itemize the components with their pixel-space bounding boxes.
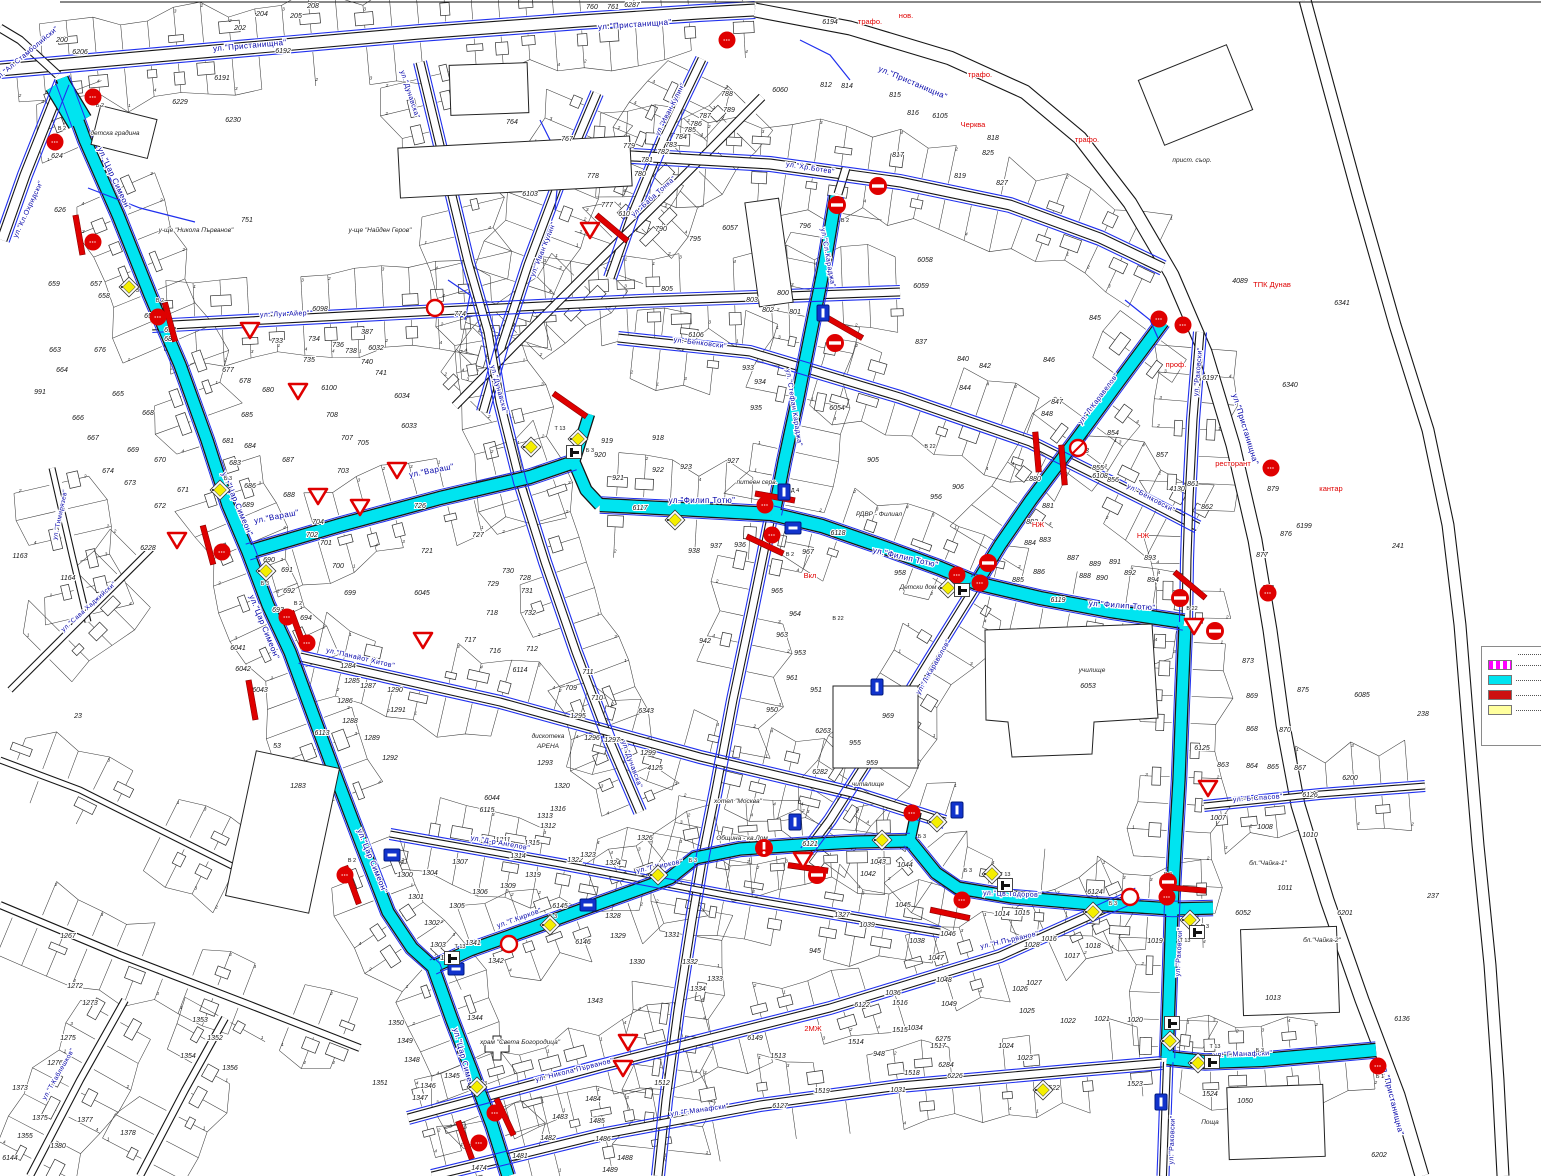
parcel-number: 764 bbox=[506, 119, 518, 126]
parcel-number: 1307 bbox=[452, 859, 469, 866]
parcel-number: 6282 bbox=[812, 769, 828, 776]
parcel-number: 6033 bbox=[401, 423, 417, 430]
svg-text:2: 2 bbox=[368, 967, 372, 973]
parcel-number: 6230 bbox=[225, 117, 241, 124]
parcel-number: 848 bbox=[1041, 411, 1053, 418]
sign-code-label: В 2 bbox=[786, 552, 794, 558]
svg-text:2: 2 bbox=[487, 414, 491, 420]
parcel-number: 950 bbox=[766, 707, 778, 714]
svg-text:2: 2 bbox=[756, 865, 760, 871]
svg-text:4: 4 bbox=[733, 259, 736, 265]
parcel-number: 4125 bbox=[647, 765, 663, 772]
parcel-number: 1302 bbox=[424, 920, 440, 927]
parcel-number: 1377 bbox=[77, 1117, 94, 1124]
sign-code-label: Д 4 bbox=[791, 488, 799, 494]
parcel-number: 6126 bbox=[1302, 792, 1318, 799]
svg-text:3: 3 bbox=[807, 809, 810, 815]
svg-text:1: 1 bbox=[758, 1055, 761, 1061]
parcel-number: 704 bbox=[312, 519, 324, 526]
parcel-number: 1484 bbox=[585, 1096, 601, 1103]
parcel-number: 1305 bbox=[449, 903, 465, 910]
parcel-number: 6200 bbox=[1342, 775, 1358, 782]
parcel-number: 935 bbox=[750, 405, 762, 412]
svg-text:4: 4 bbox=[437, 1071, 440, 1077]
svg-text:2: 2 bbox=[327, 276, 331, 282]
svg-text:3: 3 bbox=[778, 619, 781, 625]
legend-item bbox=[1488, 675, 1541, 685]
svg-text:3: 3 bbox=[1159, 395, 1162, 401]
sign-code-label: Б 3 bbox=[1109, 901, 1117, 907]
parcel-number: 1034 bbox=[907, 1025, 923, 1032]
svg-text:4: 4 bbox=[439, 340, 442, 346]
yield-sign-icon bbox=[414, 633, 432, 648]
no-entry-sign-icon bbox=[1171, 589, 1189, 607]
svg-text:3: 3 bbox=[156, 991, 159, 997]
parcel-number: 789 bbox=[723, 107, 735, 114]
svg-text:1: 1 bbox=[281, 1042, 284, 1048]
parcel-number: 701 bbox=[320, 540, 332, 547]
parcel-number: 840 bbox=[957, 356, 969, 363]
parcel-number: 937 bbox=[710, 543, 723, 550]
parcel-number: 1031 bbox=[890, 1087, 906, 1094]
svg-text:4: 4 bbox=[97, 78, 100, 84]
svg-text:1: 1 bbox=[261, 1035, 264, 1041]
sign-dot-icon bbox=[954, 892, 971, 909]
parcel-number: 666 bbox=[72, 415, 84, 422]
parcel-number: 921 bbox=[612, 475, 624, 482]
svg-text:1: 1 bbox=[907, 622, 910, 628]
svg-text:1: 1 bbox=[177, 800, 180, 806]
parcel-number: 735 bbox=[303, 357, 315, 364]
svg-text:1: 1 bbox=[523, 357, 526, 363]
svg-text:2: 2 bbox=[583, 59, 587, 65]
parcel-number: 1017 bbox=[1064, 953, 1081, 960]
svg-text:1: 1 bbox=[563, 1108, 566, 1114]
svg-text:4: 4 bbox=[557, 62, 560, 68]
svg-text:2: 2 bbox=[746, 859, 750, 865]
red-annotation: нов. bbox=[899, 11, 913, 20]
priority-road-sign-icon bbox=[1033, 1080, 1053, 1100]
parcel-number: 1018 bbox=[1085, 943, 1101, 950]
place-label: бл."Чайка-1" bbox=[1249, 859, 1287, 867]
parcel-number: 777 bbox=[601, 202, 614, 209]
parcel-number: 856 bbox=[1107, 477, 1119, 484]
svg-text:3: 3 bbox=[457, 644, 460, 650]
parcel-number: 1483 bbox=[552, 1114, 568, 1121]
svg-text:2: 2 bbox=[537, 632, 541, 638]
parcel-number: 965 bbox=[771, 588, 783, 595]
parcel-number: 707 bbox=[341, 435, 354, 442]
parcel-number: 964 bbox=[789, 611, 801, 618]
parcel-number: 1019 bbox=[1147, 938, 1163, 945]
svg-text:1: 1 bbox=[597, 612, 600, 618]
yield-sign-icon bbox=[619, 1035, 637, 1050]
parcel-number: 6275 bbox=[935, 1036, 951, 1043]
svg-text:4: 4 bbox=[1012, 461, 1015, 467]
svg-text:3: 3 bbox=[586, 207, 589, 213]
svg-text:1: 1 bbox=[898, 648, 901, 654]
svg-text:3: 3 bbox=[82, 229, 85, 235]
sign-dot-icon bbox=[1175, 317, 1192, 334]
junction-sign-icon bbox=[1165, 1017, 1180, 1030]
parcel-number: 969 bbox=[882, 713, 894, 720]
svg-text:2: 2 bbox=[818, 508, 822, 514]
svg-text:3: 3 bbox=[301, 278, 304, 284]
parcel-number: 1296 bbox=[584, 735, 600, 742]
legend-label-dots bbox=[1516, 709, 1541, 711]
svg-text:3: 3 bbox=[1108, 284, 1111, 290]
sign-dot-icon bbox=[337, 867, 354, 884]
no-entry-sign-icon bbox=[828, 196, 846, 214]
svg-text:4: 4 bbox=[1014, 384, 1017, 390]
parcel-number: 875 bbox=[1297, 687, 1309, 694]
parcel-number: 1328 bbox=[605, 913, 621, 920]
parcel-number: 784 bbox=[675, 134, 687, 141]
svg-text:3: 3 bbox=[638, 847, 641, 853]
parcel-number: 700 bbox=[332, 563, 344, 570]
svg-text:2: 2 bbox=[1140, 961, 1144, 967]
parcel-number: 703 bbox=[337, 468, 349, 475]
svg-text:2: 2 bbox=[617, 125, 621, 131]
parcel-number: 953 bbox=[794, 650, 806, 657]
parcel-number: 1341 bbox=[465, 940, 481, 947]
parcel-number: 6340 bbox=[1282, 382, 1298, 389]
place-label: дискотека bbox=[532, 732, 565, 740]
svg-text:1: 1 bbox=[624, 658, 627, 664]
parcel-number: 885 bbox=[1012, 577, 1024, 584]
svg-text:2: 2 bbox=[1083, 950, 1087, 956]
parcel-number: 782 bbox=[657, 149, 669, 156]
parcel-number: 1267 bbox=[60, 933, 77, 940]
svg-text:2: 2 bbox=[510, 892, 514, 898]
parcel-number: 956 bbox=[930, 494, 942, 501]
svg-text:2: 2 bbox=[855, 809, 859, 815]
svg-text:3: 3 bbox=[382, 267, 385, 273]
svg-text:2: 2 bbox=[1314, 1022, 1318, 1028]
parcel-number: 888 bbox=[1079, 573, 1091, 580]
svg-text:3: 3 bbox=[1150, 877, 1153, 883]
svg-text:3: 3 bbox=[369, 76, 372, 82]
svg-text:2: 2 bbox=[610, 701, 614, 707]
parcel-number: 664 bbox=[56, 367, 68, 374]
parcel-number: 674 bbox=[102, 468, 114, 475]
city-cadastral-map[interactable]: 2143132232334214432221442123143421234113… bbox=[0, 0, 1541, 1176]
svg-text:1: 1 bbox=[1132, 824, 1135, 830]
parcel-number: 6194 bbox=[822, 19, 838, 26]
parcel-number: 6103 bbox=[522, 191, 538, 198]
parcel-number: 783 bbox=[665, 142, 677, 149]
svg-text:3: 3 bbox=[543, 830, 546, 836]
parcel-number: 886 bbox=[1033, 569, 1045, 576]
svg-text:1: 1 bbox=[811, 396, 814, 402]
svg-text:2: 2 bbox=[1017, 564, 1021, 570]
parcel-number: 918 bbox=[652, 435, 664, 442]
svg-text:1: 1 bbox=[547, 1048, 550, 1054]
parcel-number: 883 bbox=[1039, 537, 1051, 544]
parcel-number: 667 bbox=[87, 435, 100, 442]
parcel-number: 1316 bbox=[550, 806, 566, 813]
parcel-number: 1351 bbox=[372, 1080, 388, 1087]
svg-text:4: 4 bbox=[442, 293, 445, 299]
svg-text:2: 2 bbox=[329, 991, 333, 997]
svg-text:4: 4 bbox=[552, 685, 555, 691]
parcel-number: 670 bbox=[154, 457, 166, 464]
svg-text:4: 4 bbox=[1136, 419, 1139, 425]
parcel-number: 857 bbox=[1156, 452, 1169, 459]
legend-swatch-yellow bbox=[1488, 705, 1512, 715]
parcel-number: 6191 bbox=[214, 75, 230, 82]
sign-code-label: Т 13 bbox=[1209, 1044, 1220, 1050]
svg-text:4: 4 bbox=[1009, 1106, 1012, 1112]
svg-text:3: 3 bbox=[174, 8, 177, 14]
sign-code-label: В 2 bbox=[841, 218, 849, 224]
street-name-label: ул."Пристанищна" bbox=[877, 64, 948, 101]
svg-text:4: 4 bbox=[1155, 637, 1158, 643]
legend-swatch-magenta bbox=[1488, 660, 1512, 670]
svg-text:3: 3 bbox=[679, 255, 682, 261]
svg-text:3: 3 bbox=[107, 757, 110, 763]
parcel-number: 1304 bbox=[422, 870, 438, 877]
parcel-number: 1046 bbox=[940, 931, 956, 938]
sign-code-label: В 22 bbox=[832, 616, 843, 622]
red-annotation: трафо. bbox=[1075, 135, 1099, 144]
parcel-number: 6127 bbox=[772, 1103, 789, 1110]
parcel-number: 788 bbox=[721, 91, 733, 98]
parcel-number: 6115 bbox=[479, 807, 494, 814]
parcel-number: 1330 bbox=[629, 959, 645, 966]
sign-dot-icon bbox=[757, 497, 774, 514]
parcel-number: 668 bbox=[142, 410, 154, 417]
svg-text:2: 2 bbox=[18, 93, 22, 99]
svg-text:3: 3 bbox=[779, 702, 782, 708]
parcel-number: 734 bbox=[308, 336, 320, 343]
svg-text:1: 1 bbox=[107, 1136, 110, 1142]
svg-text:2: 2 bbox=[537, 890, 541, 896]
parcel-number: 6042 bbox=[235, 666, 251, 673]
parcel-number: 1025 bbox=[1019, 1008, 1035, 1015]
parcel-number: 1481 bbox=[512, 1153, 528, 1160]
parcel-number: 1485 bbox=[589, 1118, 605, 1125]
svg-text:4: 4 bbox=[332, 1060, 335, 1066]
sign-code-label: Т 13 bbox=[1179, 938, 1190, 944]
parcel-number: 669 bbox=[127, 447, 139, 454]
parcel-number: 624 bbox=[51, 153, 63, 160]
svg-text:1: 1 bbox=[1066, 251, 1069, 257]
yield-sign-icon bbox=[388, 463, 406, 478]
svg-text:4: 4 bbox=[435, 265, 438, 271]
parcel-number: 718 bbox=[486, 610, 498, 617]
parcel-number: 938 bbox=[688, 548, 700, 555]
parcel-number: 1313 bbox=[537, 813, 553, 820]
info-sign-icon bbox=[785, 522, 801, 534]
place-label: прист. съор. bbox=[1172, 157, 1211, 164]
parcel-number: 816 bbox=[907, 110, 919, 117]
street-name-label: ул."Филип Тотю" bbox=[669, 496, 736, 505]
sign-dot-icon bbox=[1370, 1058, 1387, 1075]
parcel-number: 6044 bbox=[484, 795, 500, 802]
svg-text:2: 2 bbox=[893, 1050, 897, 1056]
parcel-number: 1289 bbox=[364, 735, 380, 742]
svg-text:1: 1 bbox=[713, 105, 716, 111]
parcel-number: 6057 bbox=[722, 225, 739, 232]
parcel-number: 208 bbox=[306, 3, 319, 10]
road-closure-bar-icon bbox=[930, 907, 970, 921]
parcel-number: 1309 bbox=[500, 883, 516, 890]
parcel-number: 1273 bbox=[82, 1000, 98, 1007]
parcel-number: 1474 bbox=[471, 1165, 487, 1172]
svg-text:4: 4 bbox=[623, 188, 626, 194]
parcel-number: 1301 bbox=[408, 894, 424, 901]
svg-text:4: 4 bbox=[375, 542, 378, 548]
parcel-number: 1320 bbox=[554, 783, 570, 790]
svg-text:2: 2 bbox=[336, 687, 340, 693]
parcel-number: 845 bbox=[1089, 315, 1101, 322]
parcel-number: 1036 bbox=[885, 990, 901, 997]
parcel-number: 801 bbox=[789, 309, 801, 316]
svg-text:2: 2 bbox=[849, 1027, 853, 1033]
svg-text:2: 2 bbox=[558, 688, 562, 694]
no-entry-sign-icon bbox=[826, 334, 844, 352]
svg-text:2: 2 bbox=[269, 676, 273, 682]
parcel-number: 1523 bbox=[1127, 1081, 1143, 1088]
parcel-number: 815 bbox=[889, 92, 901, 99]
place-label: питеен серв. bbox=[737, 479, 778, 486]
svg-text:4: 4 bbox=[906, 504, 909, 510]
svg-text:4: 4 bbox=[464, 348, 467, 354]
parcel-number: 1515 bbox=[892, 1027, 908, 1034]
parcel-number: 6054 bbox=[829, 405, 845, 412]
sign-dot-icon bbox=[85, 89, 102, 106]
parcel-number: 663 bbox=[49, 347, 61, 354]
map-legend bbox=[1481, 646, 1541, 746]
svg-text:2: 2 bbox=[384, 338, 388, 344]
place-label: у-ще "Никола Първанов" bbox=[158, 227, 234, 234]
svg-text:2: 2 bbox=[579, 229, 583, 235]
street-name-label: ул."Вараш" bbox=[408, 462, 454, 480]
junction-sign-icon bbox=[445, 952, 460, 965]
svg-text:4: 4 bbox=[712, 633, 715, 639]
parcel-number: 780 bbox=[634, 171, 646, 178]
svg-text:1: 1 bbox=[481, 525, 484, 531]
parcel-number: 868 bbox=[1246, 726, 1258, 733]
svg-text:3: 3 bbox=[708, 319, 711, 325]
cyan-street-network bbox=[57, 78, 1376, 1176]
parcel-number: 1290 bbox=[387, 687, 403, 694]
parcel-number: 726 bbox=[414, 503, 426, 510]
parcel-number: 711 bbox=[582, 669, 593, 676]
parcel-number: 1163 bbox=[12, 553, 27, 560]
svg-text:4: 4 bbox=[34, 540, 37, 546]
parcel-number: 1314 bbox=[510, 853, 526, 860]
legend-swatch-cyan bbox=[1488, 675, 1512, 685]
parcel-number: 6114 bbox=[512, 667, 527, 674]
svg-text:1: 1 bbox=[128, 103, 131, 109]
street-name-label: ул."Раковски" bbox=[1168, 1115, 1177, 1164]
parcel-number: 6287 bbox=[624, 2, 641, 9]
svg-text:2: 2 bbox=[929, 591, 933, 597]
parcel-number: 626 bbox=[54, 207, 66, 214]
svg-text:2: 2 bbox=[113, 529, 117, 535]
svg-text:3: 3 bbox=[680, 839, 683, 845]
parcel-number: 1373 bbox=[12, 1085, 28, 1092]
parcel-texture: 2143132232334214432221442123143421234113… bbox=[0, 0, 1414, 1176]
svg-text:1: 1 bbox=[406, 984, 409, 990]
parcel-number: 854 bbox=[1107, 430, 1119, 437]
parcel-number: 846 bbox=[1043, 357, 1055, 364]
svg-text:2: 2 bbox=[411, 1021, 415, 1027]
parcel-number: 818 bbox=[987, 135, 999, 142]
svg-text:2: 2 bbox=[440, 321, 444, 327]
parcel-number: 891 bbox=[1109, 559, 1121, 566]
parcel-number: 688 bbox=[283, 492, 295, 499]
svg-text:4: 4 bbox=[81, 201, 84, 207]
parcel-number: 6149 bbox=[747, 1035, 763, 1042]
parcel-number: 805 bbox=[661, 286, 673, 293]
parcel-number: 1319 bbox=[525, 872, 541, 879]
svg-text:1: 1 bbox=[758, 440, 761, 446]
parcel-number: 237 bbox=[1426, 893, 1440, 900]
parcel-number: 803 bbox=[746, 297, 758, 304]
svg-text:4: 4 bbox=[979, 989, 982, 995]
road-closure-bar-icon bbox=[200, 525, 216, 565]
svg-text:4: 4 bbox=[154, 88, 157, 94]
parcel-number: 781 bbox=[641, 157, 653, 164]
red-annotation: трафо. bbox=[858, 17, 882, 26]
parcel-number: 238 bbox=[1416, 711, 1429, 718]
parcel-number: 738 bbox=[345, 348, 357, 355]
sign-code-label: Б 3 bbox=[261, 581, 269, 587]
parcel-number: 1517 bbox=[930, 1043, 947, 1050]
svg-text:4: 4 bbox=[900, 130, 903, 136]
svg-text:2: 2 bbox=[1086, 264, 1090, 270]
road-closure-bar-icon bbox=[246, 680, 258, 720]
parcel-number: 867 bbox=[1294, 765, 1307, 772]
parcel-number: 6202 bbox=[1371, 1152, 1387, 1159]
parcel-number: 1272 bbox=[67, 983, 83, 990]
svg-text:3: 3 bbox=[358, 477, 361, 483]
svg-text:4: 4 bbox=[378, 779, 381, 785]
svg-text:3: 3 bbox=[1351, 743, 1354, 749]
parcel-number: 787 bbox=[699, 113, 712, 120]
legend-label-dots bbox=[1516, 694, 1541, 696]
parcel-number: 1014 bbox=[994, 911, 1010, 918]
svg-text:1: 1 bbox=[706, 1150, 709, 1156]
parcel-number: 967 bbox=[802, 549, 815, 556]
parcel-number: 812 bbox=[820, 82, 832, 89]
svg-text:4: 4 bbox=[416, 1081, 419, 1087]
svg-text:4: 4 bbox=[509, 968, 512, 974]
parcel-number: 1349 bbox=[397, 1038, 413, 1045]
parcel-number: 1043 bbox=[870, 859, 886, 866]
red-annotation: ТПК Дунав bbox=[1253, 280, 1291, 289]
svg-text:4: 4 bbox=[303, 1060, 306, 1066]
parcel-number: 1482 bbox=[540, 1135, 556, 1142]
parcel-number: 1512 bbox=[654, 1080, 670, 1087]
parcel-number: 1021 bbox=[1094, 1016, 1110, 1023]
restriction-ring-icon bbox=[501, 936, 517, 952]
info-sign-icon bbox=[580, 899, 596, 911]
svg-text:2: 2 bbox=[854, 322, 858, 328]
parcel-number: 767 bbox=[561, 136, 574, 143]
parcel-number: 863 bbox=[1217, 762, 1229, 769]
parcel-number: 686 bbox=[244, 483, 256, 490]
parcel-number: 1038 bbox=[909, 938, 925, 945]
svg-text:4: 4 bbox=[1158, 570, 1161, 576]
svg-text:4: 4 bbox=[877, 1025, 880, 1031]
parcel-number: 694 bbox=[300, 615, 312, 622]
svg-text:1: 1 bbox=[954, 783, 957, 789]
parcel-number: 1486 bbox=[595, 1136, 611, 1143]
